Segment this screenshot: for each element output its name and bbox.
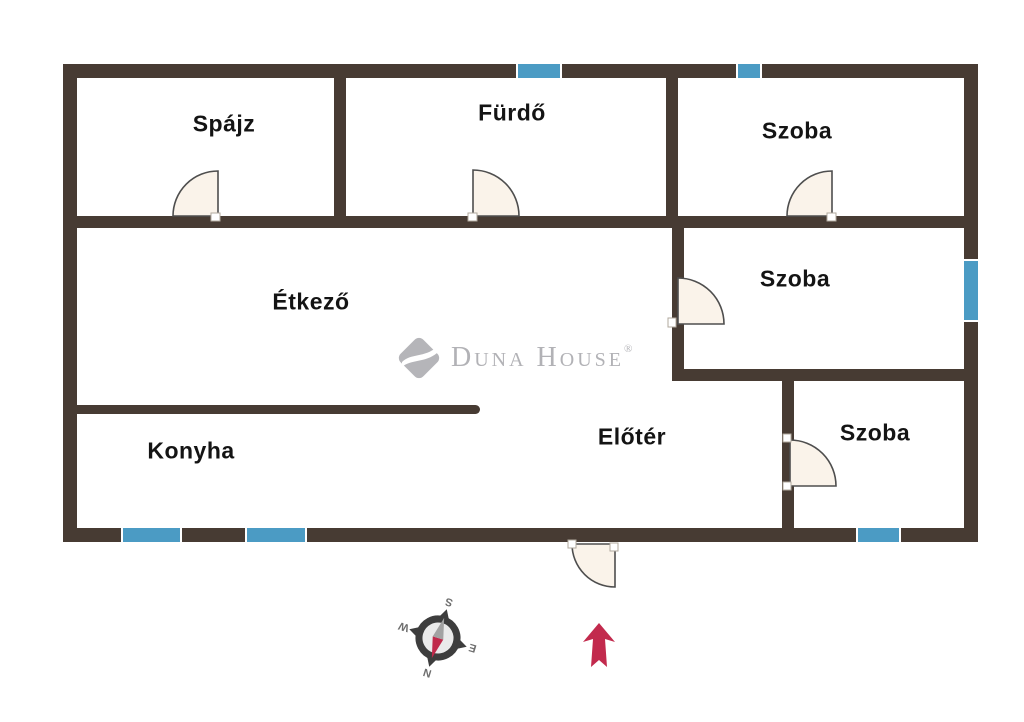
window-top-1 xyxy=(516,64,562,78)
brand-watermark: Duna House® xyxy=(396,330,635,386)
compass-label-north: N xyxy=(422,666,433,680)
wall-eloter-szoba-divider xyxy=(782,381,794,528)
room-label-szoba-top-right: Szoba xyxy=(762,118,832,145)
door-furdo-icon xyxy=(473,170,519,216)
compass-label-south: S xyxy=(444,596,455,608)
door-spajz-icon xyxy=(173,171,218,216)
north-arrow-icon xyxy=(582,623,616,668)
room-label-furdo: Fürdő xyxy=(478,100,546,127)
window-bottom-2 xyxy=(245,528,307,542)
room-label-spajz: Spájz xyxy=(193,111,256,138)
door-szoba-middle-icon xyxy=(678,278,724,324)
door-szoba-bottom-icon xyxy=(790,440,836,486)
compass-label-east: E xyxy=(467,641,478,655)
duna-house-logo-icon xyxy=(396,330,442,386)
wall-middle-szoba-bottom xyxy=(672,369,978,381)
window-right xyxy=(964,259,978,322)
door-entrance-icon xyxy=(572,544,615,587)
room-label-eloter: Előtér xyxy=(598,424,666,451)
door-hinge-mark xyxy=(610,543,618,551)
floor-plan: Spájz Fürdő Szoba Szoba Szoba Étkező Kon… xyxy=(0,0,1024,722)
wall-etkezo-szoba-divider xyxy=(672,226,684,371)
brand-name: Duna House® xyxy=(451,344,635,372)
wall-outer-bottom xyxy=(63,528,978,542)
compass-label-west: W xyxy=(397,619,411,634)
registered-mark: ® xyxy=(624,343,635,355)
wall-konyha-partial xyxy=(73,405,480,414)
door-szoba-top-icon xyxy=(787,171,832,216)
window-bottom-3 xyxy=(856,528,901,542)
wall-spajz-furdo-divider xyxy=(334,78,346,218)
compass-rose-icon: N S E W xyxy=(396,596,480,680)
room-label-szoba-middle-right: Szoba xyxy=(760,266,830,293)
window-bottom-1 xyxy=(121,528,182,542)
room-label-etkezo: Étkező xyxy=(272,289,349,316)
wall-furdo-szoba-divider xyxy=(666,78,678,218)
wall-interior-horizontal-upper xyxy=(63,216,978,228)
wall-outer-left xyxy=(63,64,77,542)
window-top-2 xyxy=(736,64,762,78)
room-label-konyha: Konyha xyxy=(147,438,234,465)
room-label-szoba-bottom-right: Szoba xyxy=(840,420,910,447)
